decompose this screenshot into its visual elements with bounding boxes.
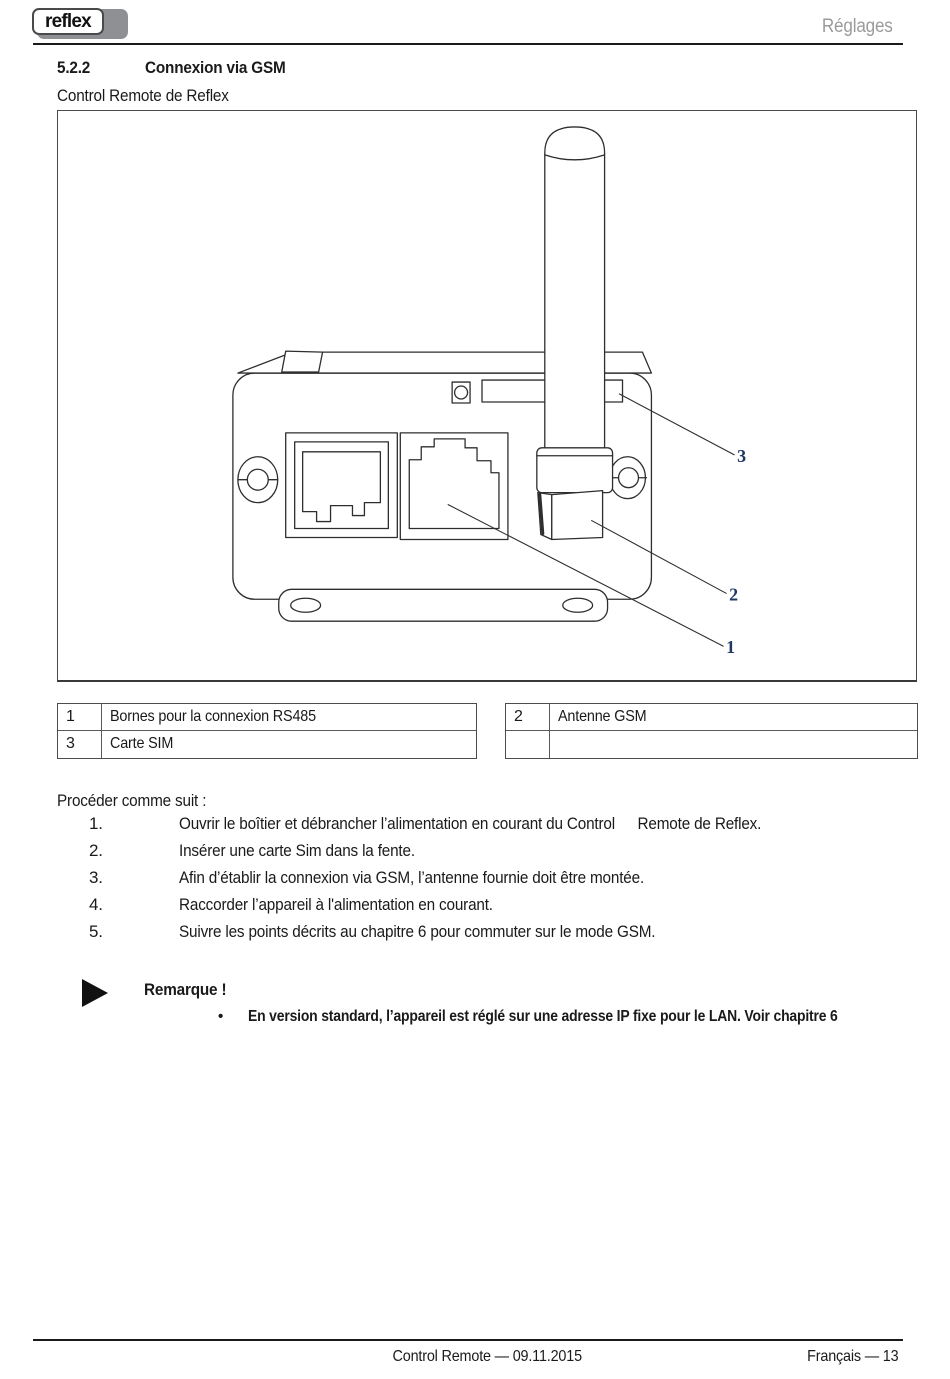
legend-label: Bornes pour la connexion RS485 [102,704,476,731]
header-rule [33,43,903,45]
step-number: 3. [89,868,103,888]
step-text: Raccorder l’appareil à l'alimentation en… [179,895,528,915]
right-screw-boss [610,457,647,499]
callout-label-2: 2 [729,584,738,604]
legend-num [506,731,550,758]
sim-card [538,491,603,540]
procedure-step: 2. Insérer une carte Sim dans la fente. [0,841,950,863]
note-triangle-icon [82,979,108,1007]
footer-rule [33,1339,903,1341]
legend-label [550,731,917,758]
figure-caption: Control Remote de Reflex [57,86,248,106]
bullet-dot: • [218,1008,223,1025]
legend-num: 1 [58,704,102,731]
procedure-step: 3. Afin d’établir la connexion via GSM, … [0,868,950,890]
step-number: 4. [89,895,103,915]
gsm-antenna [537,127,613,493]
procedure-step: 1. Ouvrir le boîtier et débrancher l’ali… [0,814,950,836]
step-text: Suivre les points décrits au chapitre 6 … [179,922,708,942]
reflex-logo-text: reflex [45,11,91,33]
step-number: 1. [89,814,103,834]
legend-table-right: 2 Antenne GSM [505,703,918,759]
note-bullet-text: En version standard, l’appareil est régl… [248,1008,903,1026]
step-text: Insérer une carte Sim dans la fente. [179,841,441,861]
reflex-logo: reflex [32,8,128,39]
step-number: 5. [89,922,103,942]
legend-table-left: 1 Bornes pour la connexion RS485 3 Carte… [57,703,477,759]
device-figure-frame: 3 2 1 [57,110,917,682]
step-number: 2. [89,841,103,861]
rs485-port-left [286,433,398,538]
procedure-intro: Procéder comme suit : [57,791,223,811]
left-screw-boss [238,457,278,503]
reflex-logo-face: reflex [32,8,104,35]
device-illustration: 3 2 1 [58,111,916,680]
procedure-step: 5. Suivre les points décrits au chapitre… [0,922,950,944]
legend-label: Antenne GSM [550,704,917,731]
note-title: Remarque ! [144,980,236,1000]
manual-page: reflex Réglages 5.2.2 Connexion via GSM … [0,0,950,1379]
rs485-port-right [400,433,508,540]
footer-page-info: Français — 13 [797,1348,898,1366]
legend-num: 3 [58,731,102,758]
header-section-label: Réglages [814,16,893,38]
step-text: Ouvrir le boîtier et débrancher l’alimen… [179,814,826,834]
section-title: Connexion via GSM [145,58,301,78]
mounting-plate [279,589,608,621]
step-text: Afin d’établir la connexion via GSM, l’a… [179,868,696,888]
section-number: 5.2.2 [57,58,94,78]
legend-label: Carte SIM [102,731,476,758]
callout-label-1: 1 [726,637,735,657]
procedure-step: 4. Raccorder l’appareil à l'alimentation… [0,895,950,917]
legend-num: 2 [506,704,550,731]
callout-label-3: 3 [737,446,746,466]
